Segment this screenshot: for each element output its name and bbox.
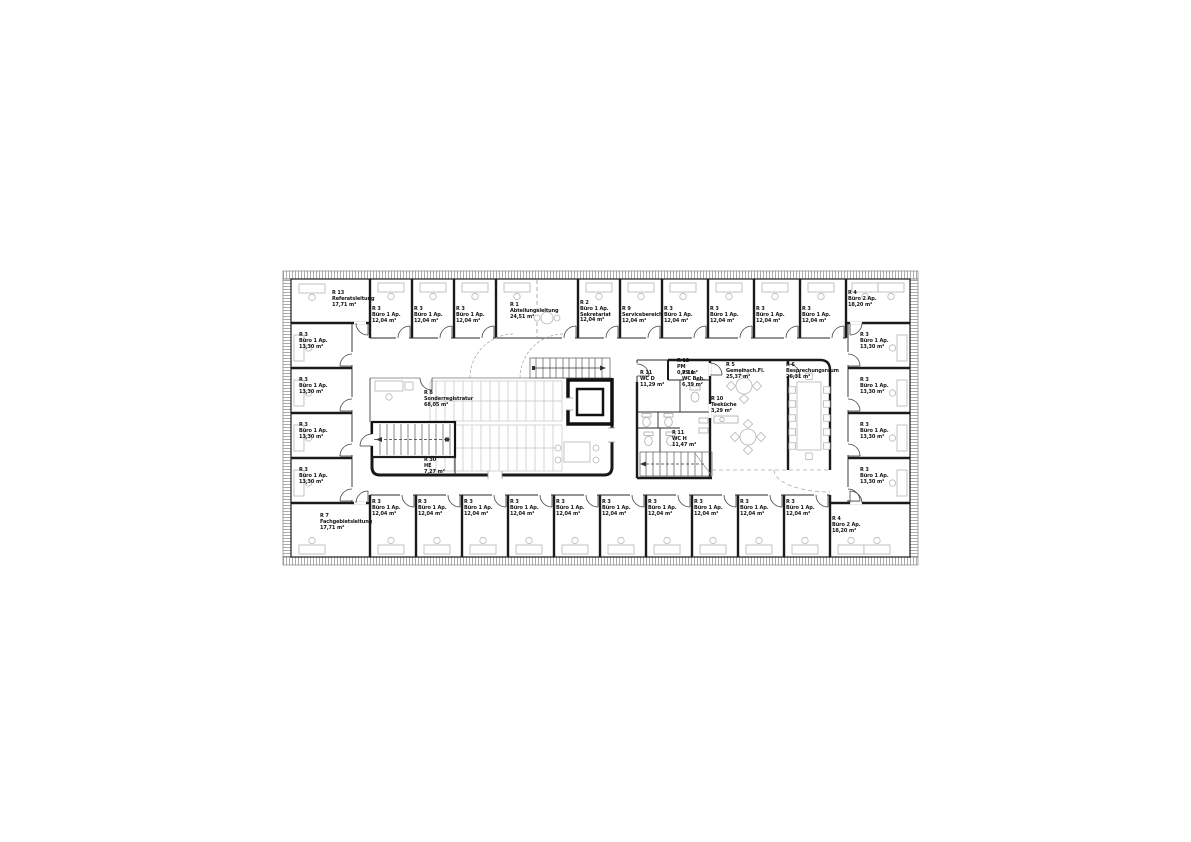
room-label-line: 13,30 m² (299, 390, 328, 396)
room-label-line: 12,04 m² (694, 512, 723, 518)
room-label-line: 13,30 m² (299, 435, 328, 441)
room-label-sekretariat: R 2Büro 1 Ap.Sekretariat12,04 m² (580, 301, 611, 324)
room-label-line: 26,31 m² (786, 375, 839, 381)
room-label: R 3Büro 1 Ap.12,04 m² (556, 500, 585, 517)
room-label-line: 11,29 m² (640, 383, 664, 389)
room-label: R 3Büro 1 Ap.12,04 m² (418, 500, 447, 517)
room-label-wc-herren: R 11WC H11,47 m² (672, 431, 696, 448)
core-registratur (360, 334, 615, 479)
room-label-he: R 30HE7,27 m² (424, 458, 445, 475)
room-label-abteilungsleitung: R 1Abteilungsleitung24,51 m² (510, 303, 559, 320)
room-label-teekueche: R 10Teeküche3,29 m² (711, 397, 737, 414)
room-label-line: 13,30 m² (299, 345, 328, 351)
room-label: R 3Büro 1 Ap.12,04 m² (756, 307, 785, 324)
room-label: R 3Büro 1 Ap.12,04 m² (372, 307, 401, 324)
room-label-line: 13,30 m² (860, 390, 889, 396)
floorplan-drawing (0, 0, 1191, 842)
room-label: R 3Büro 1 Ap.13,30 m² (860, 378, 889, 395)
room-label-line: 18,20 m² (848, 303, 877, 309)
room-label-buero-2ap: R 4Büro 2 Ap.18,20 m² (832, 517, 861, 534)
room-label-line: 13,30 m² (299, 480, 328, 486)
room-label-line: 12,04 m² (510, 512, 539, 518)
room-label-line: 12,04 m² (622, 319, 662, 325)
room-label-line: 12,04 m² (740, 512, 769, 518)
room-label: R 3Büro 1 Ap.12,04 m² (710, 307, 739, 324)
room-label-line: 18,20 m² (832, 529, 861, 535)
room-label-gemeinschaftsflaeche: R 5Gemeinsch.Fl.25,37 m² (726, 363, 765, 380)
room-label-line: 24,51 m² (510, 315, 559, 321)
room-label: R 3Büro 1 Ap.13,30 m² (299, 333, 328, 350)
room-label-besprechungsraum: R 6Besprechungsraum26,31 m² (786, 363, 839, 380)
room-label: R 3Büro 1 Ap.12,04 m² (510, 500, 539, 517)
room-label: R 3Büro 1 Ap.12,04 m² (602, 500, 631, 517)
room-label-line: 6,39 m² (682, 383, 705, 389)
room-label: R 3Büro 1 Ap.12,04 m² (414, 307, 443, 324)
room-label-referatsleitung: R 13Referatsleitung17,71 m² (332, 291, 374, 308)
stair-north (530, 358, 610, 378)
room-label-line: 3,29 m² (711, 409, 737, 415)
room-label-line: 11,47 m² (672, 443, 696, 449)
room-label-line: 12,04 m² (372, 512, 401, 518)
room-label-line: 68,05 m² (424, 403, 473, 409)
room-label-line: 12,04 m² (756, 319, 785, 325)
floorplan-sheet: R 13Referatsleitung17,71 m² R 3Büro 1 Ap… (0, 0, 1191, 842)
room-label-line: 12,04 m² (418, 512, 447, 518)
room-label-line: 25,37 m² (726, 375, 765, 381)
room-label-line: 12,04 m² (456, 319, 485, 325)
room-label: R 3Büro 1 Ap.12,04 m² (372, 500, 401, 517)
room-label: R 3Büro 1 Ap.12,04 m² (664, 307, 693, 324)
room-label: R 3Büro 1 Ap.13,30 m² (860, 423, 889, 440)
room-label: R 3Büro 1 Ap.13,30 m² (299, 423, 328, 440)
room-label: R 3Büro 1 Ap.12,04 m² (694, 500, 723, 517)
room-label: R 3Büro 1 Ap.13,30 m² (860, 468, 889, 485)
room-label-line: 12,04 m² (786, 512, 815, 518)
room-label-line: 17,71 m² (320, 526, 372, 532)
room-label-sonderregistratur: R 8Sonderregistratur68,05 m² (424, 391, 473, 408)
room-label-line: 7,27 m² (424, 470, 445, 476)
room-label-wc-beh: R 11WC Beh.6,39 m² (682, 371, 705, 388)
room-label-servicebereich: R 9Servicebereich12,04 m² (622, 307, 662, 324)
room-label-line: 13,30 m² (860, 345, 889, 351)
room-label-wc-damen: R 11WC D11,29 m² (640, 371, 664, 388)
room-label: R 3Büro 1 Ap.13,30 m² (860, 333, 889, 350)
room-label-line: 12,04 m² (710, 319, 739, 325)
room-label: R 3Büro 1 Ap.12,04 m² (456, 307, 485, 324)
room-label: R 3Büro 1 Ap.13,30 m² (299, 378, 328, 395)
room-label: R 3Büro 1 Ap.13,30 m² (299, 468, 328, 485)
room-label-line: 12,04 m² (602, 512, 631, 518)
room-label-line: 12,04 m² (580, 318, 611, 324)
room-label-line: 12,04 m² (372, 319, 401, 325)
stair-south (640, 452, 712, 476)
room-label: R 3Büro 1 Ap.12,04 m² (802, 307, 831, 324)
room-label: R 3Büro 1 Ap.12,04 m² (786, 500, 815, 517)
room-label-line: 12,04 m² (664, 319, 693, 325)
room-label-line: 12,04 m² (802, 319, 831, 325)
room-label-line: 13,30 m² (860, 435, 889, 441)
room-label-fachgebietsleitung: R 7Fachgebietsleitung17,71 m² (320, 514, 372, 531)
room-label: R 3Büro 1 Ap.12,04 m² (464, 500, 493, 517)
room-label-line: 12,04 m² (464, 512, 493, 518)
room-label-line: 12,04 m² (414, 319, 443, 325)
room-label-line: 17,71 m² (332, 303, 374, 309)
room-label-line: 13,30 m² (860, 480, 889, 486)
room-label: R 3Büro 1 Ap.12,04 m² (648, 500, 677, 517)
elevator (566, 380, 612, 424)
room-label-buero-2ap: R 4Büro 2 Ap.18,20 m² (848, 291, 877, 308)
room-label: R 3Büro 1 Ap.12,04 m² (740, 500, 769, 517)
room-label-line: 12,04 m² (556, 512, 585, 518)
room-label-line: 12,04 m² (648, 512, 677, 518)
